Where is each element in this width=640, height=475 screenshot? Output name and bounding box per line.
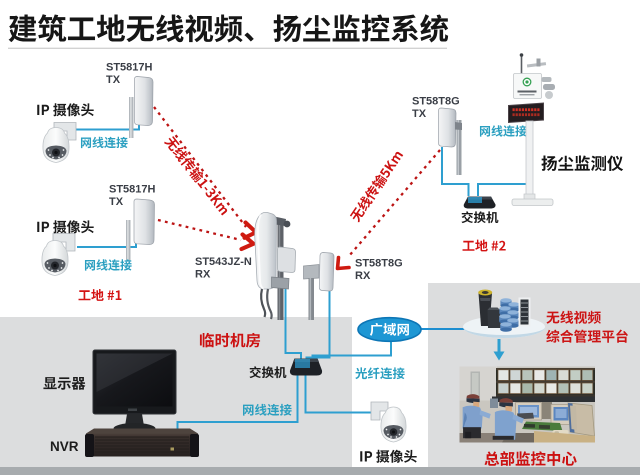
svg-text:ST58T8G: ST58T8G: [355, 258, 403, 270]
svg-text:TX: TX: [412, 108, 427, 120]
svg-text:TX: TX: [106, 74, 121, 86]
svg-text:RX: RX: [195, 269, 211, 281]
svg-text:ST58T8G: ST58T8G: [412, 96, 460, 108]
svg-text:ST5817H: ST5817H: [106, 62, 153, 74]
svg-text:NVR: NVR: [50, 439, 79, 454]
svg-text:RX: RX: [355, 270, 371, 282]
svg-text:TX: TX: [109, 196, 124, 208]
svg-text:ST5817H: ST5817H: [109, 184, 156, 196]
svg-text:ST543JZ-N: ST543JZ-N: [195, 256, 252, 268]
